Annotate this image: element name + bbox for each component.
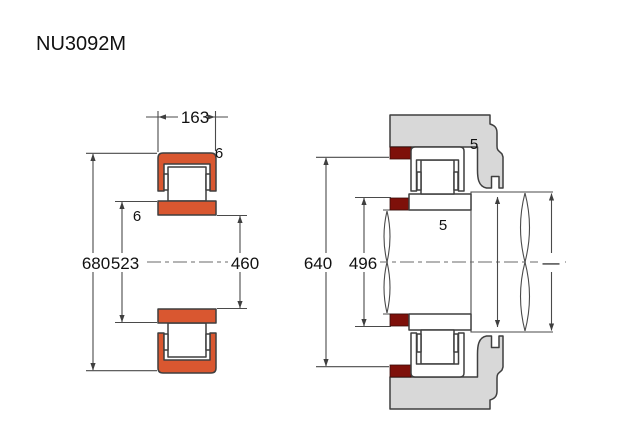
dim-label-outer-diameter: 680: [82, 254, 110, 273]
cage-bar-icon: [164, 334, 168, 350]
mounted-roller-bottom: [421, 330, 454, 364]
cage-bar-icon: [417, 334, 421, 352]
roller-top: [168, 167, 206, 201]
dim-label-bore-diameter: 460: [231, 254, 259, 273]
part-number-title: NU3092M: [36, 33, 126, 55]
seal-ring: [390, 365, 411, 377]
mounted-inner-ring-bottom: [409, 314, 471, 330]
right-view-mounted-arrangement: [374, 115, 566, 409]
cage-bar-icon: [206, 334, 210, 350]
roller-bottom: [168, 323, 206, 357]
seal-ring: [390, 147, 411, 159]
cage-bar-icon: [454, 172, 458, 190]
dim-label-flange-diameter: 523: [111, 254, 139, 273]
technical-drawing-canvas: NU3092M 163 6: [0, 0, 640, 440]
mounted-roller-top: [421, 160, 454, 194]
dim-label-clearance-mid: 5: [439, 217, 447, 234]
seal-ring: [390, 198, 411, 210]
cage-bar-icon: [417, 172, 421, 190]
mounted-inner-ring-top: [409, 194, 471, 210]
cage-bar-icon: [164, 174, 168, 190]
cage-bar-icon: [454, 334, 458, 352]
cage-bar-icon: [206, 174, 210, 190]
dim-label-shaft-abutment: 496: [349, 254, 377, 273]
dim-label-inner-chamfer: 6: [133, 208, 141, 225]
inner-ring-bottom: [158, 309, 216, 323]
dim-label-width: 163: [181, 108, 209, 127]
dim-label-housing-abutment: 640: [304, 254, 332, 273]
dim-label-clearance-top: 5: [470, 136, 478, 153]
dim-label-outer-chamfer: 6: [215, 145, 223, 162]
drawing-page: NU3092M 163 6: [0, 0, 640, 440]
inner-ring-top: [158, 201, 216, 215]
seal-ring: [390, 314, 411, 326]
left-view-cross-section: [147, 153, 228, 373]
dim-label-unspecified: —: [543, 253, 560, 272]
